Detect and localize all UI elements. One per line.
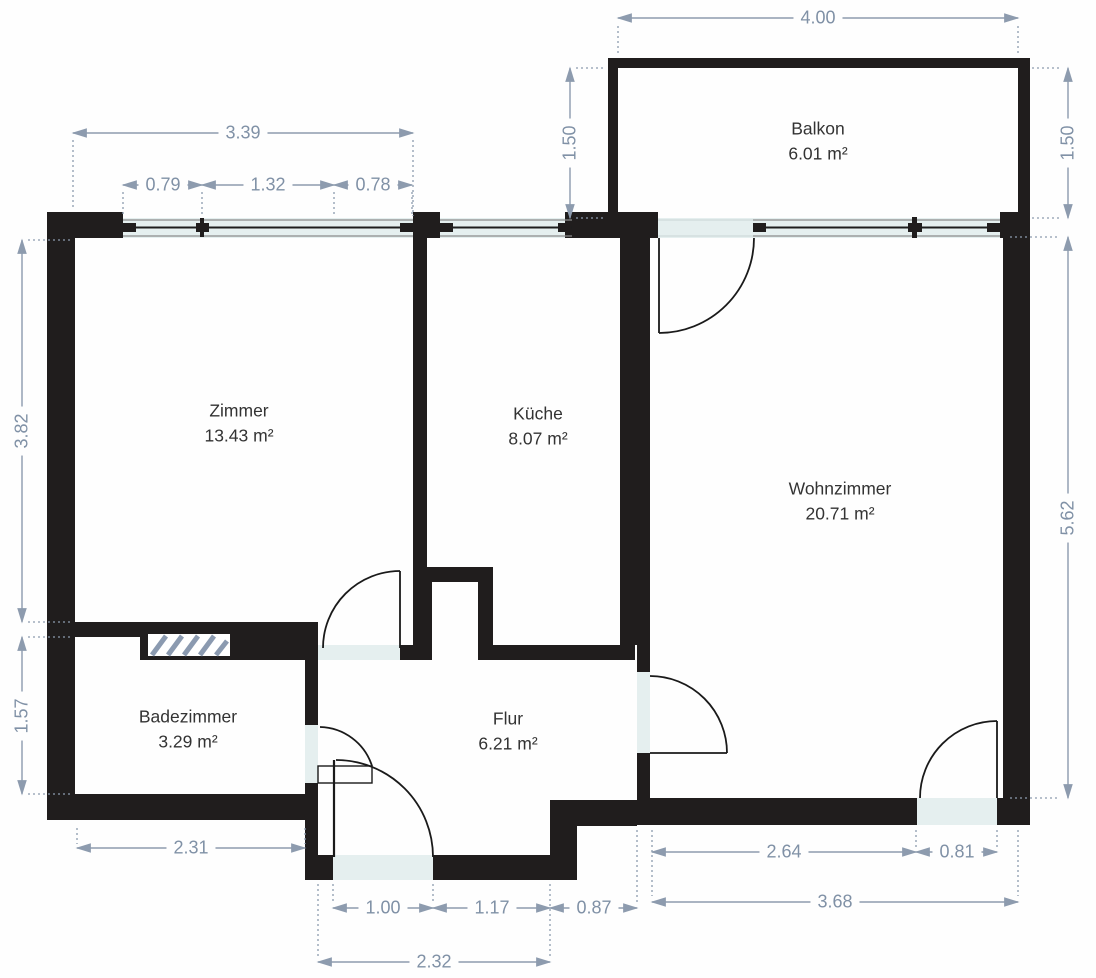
room-area: 13.43 m² <box>204 424 273 449</box>
dim-flur-bottom-mid: 1.17 <box>467 898 516 919</box>
bath-door-threshold <box>305 725 318 783</box>
dim-wohnzimmer-door-width: 0.81 <box>932 842 981 863</box>
room-label-zimmer: Zimmer 13.43 m² <box>204 399 273 450</box>
floor-plan-drawing <box>0 0 1096 978</box>
walls <box>47 58 1030 880</box>
wohnzimmer-exit-door <box>920 721 997 798</box>
wall-bad-top-right <box>240 633 318 660</box>
wohnzimmer-exit-door-threshold <box>917 798 997 825</box>
room-label-kueche: Küche 8.07 m² <box>508 402 567 453</box>
room-label-wohnzimmer: Wohnzimmer 20.71 m² <box>789 477 892 528</box>
wall-kueche-wohnzimmer <box>620 238 650 645</box>
wall-top-a <box>47 212 123 238</box>
badezimmer-door <box>318 727 372 783</box>
room-name: Badezimmer <box>139 705 237 730</box>
room-name: Zimmer <box>204 399 273 424</box>
wall-niche-left <box>413 582 432 645</box>
dim-zimmer-win-mid: 1.32 <box>243 175 292 196</box>
dim-zimmer-top-total: 3.39 <box>218 123 267 144</box>
balcony-parapet-left <box>608 58 618 218</box>
flur-wohnzimmer-door-threshold <box>637 672 650 753</box>
balcony-parapet-right <box>1018 58 1030 218</box>
wall-niche-back <box>413 567 493 582</box>
window-tints <box>123 218 1000 880</box>
entry-door <box>334 760 433 857</box>
room-area: 6.21 m² <box>478 732 537 757</box>
wall-top-b <box>413 212 440 238</box>
dim-entry-door-width: 1.00 <box>358 898 407 919</box>
room-label-flur: Flur 6.21 m² <box>478 707 537 758</box>
wall-wohnzimmer-bottom-right <box>997 798 1030 825</box>
dim-bad-bottom-width: 2.31 <box>166 838 215 859</box>
flur-wohnzimmer-door <box>650 676 727 753</box>
room-area: 8.07 m² <box>508 427 567 452</box>
dim-bad-left-height: 1.57 <box>12 691 33 740</box>
dim-zimmer-win-left: 0.79 <box>138 175 187 196</box>
floor-plan-canvas: Balkon 6.01 m² Zimmer 13.43 m² Küche 8.0… <box>0 0 1096 978</box>
room-area: 6.01 m² <box>788 142 847 167</box>
zimmer-door-threshold <box>318 645 400 660</box>
dim-vestibule-width: 2.32 <box>409 952 458 973</box>
wall-flur-wohnzimmer-upper <box>637 645 650 672</box>
room-name: Wohnzimmer <box>789 477 892 502</box>
dim-wohnzimmer-bottom-seg: 2.64 <box>759 842 808 863</box>
balcony-door <box>659 238 754 333</box>
zimmer-door <box>323 571 400 648</box>
room-label-badezimmer: Badezimmer 3.29 m² <box>139 705 237 756</box>
wall-wohnzimmer-bottom-left <box>637 798 917 825</box>
dim-wohnzimmer-right-height: 5.62 <box>1058 493 1079 542</box>
balcony-parapet-top <box>608 58 1028 68</box>
balcony-door-threshold <box>658 218 753 238</box>
dim-zimmer-win-right: 0.78 <box>348 175 397 196</box>
dim-balcony-depth-right: 1.50 <box>1058 118 1079 167</box>
wall-niche-right <box>478 582 493 645</box>
wall-zimmer-kueche <box>413 238 427 567</box>
wall-right-outer <box>1003 212 1030 825</box>
dim-zimmer-left-height: 3.82 <box>12 406 33 455</box>
room-name: Balkon <box>788 117 847 142</box>
wall-kueche-bottom <box>478 645 635 660</box>
shaft-hatch <box>148 634 230 656</box>
room-area: 3.29 m² <box>139 730 237 755</box>
room-area: 20.71 m² <box>789 502 892 527</box>
entry-door-threshold <box>333 855 433 880</box>
room-name: Flur <box>478 707 537 732</box>
dim-flur-bottom-right: 0.87 <box>569 898 618 919</box>
wall-zimmer-door-jamb <box>400 645 432 660</box>
room-name: Küche <box>508 402 567 427</box>
dim-balcony-width: 4.00 <box>793 8 842 29</box>
wall-left-outer <box>47 212 75 820</box>
wall-flur-wohnzimmer-lower <box>637 753 650 800</box>
dim-wohnzimmer-bottom-total: 3.68 <box>810 892 859 913</box>
dim-balcony-depth-left: 1.50 <box>560 118 581 167</box>
wall-bad-bottom <box>47 794 318 820</box>
wall-vestibule-bottom-right <box>433 855 577 880</box>
room-label-balkon: Balkon 6.01 m² <box>788 117 847 168</box>
